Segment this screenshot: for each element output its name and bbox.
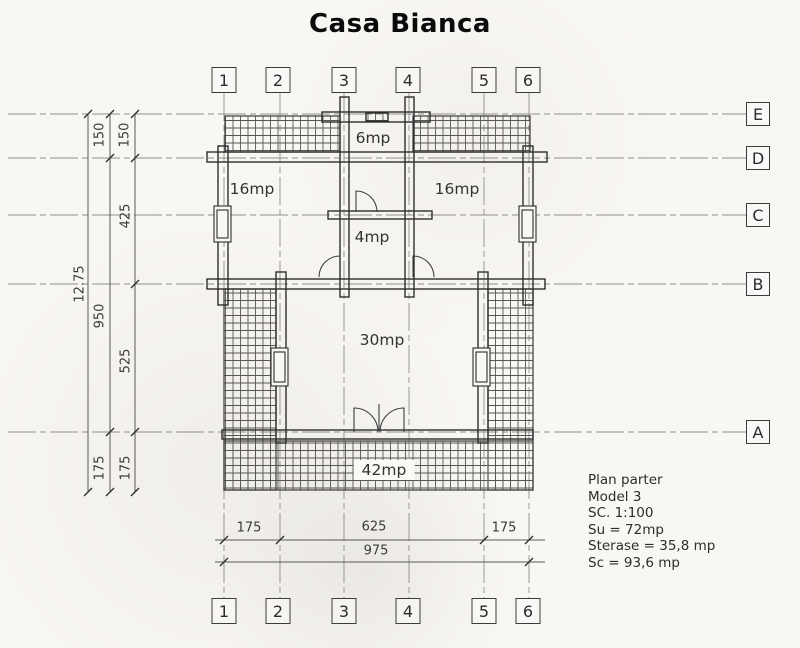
room-label-living-30mp: 30mp — [360, 331, 405, 349]
dim-label-950: 950 — [93, 304, 108, 329]
grid-col-marker-bottom-3: 3 — [332, 598, 357, 624]
floor-plan-page: Casa Bianca — [0, 0, 800, 648]
grid-col-marker-top-1: 1 — [212, 67, 237, 93]
grid-col-marker-bottom-1: 1 — [212, 598, 237, 624]
grid-row-marker-D: D — [746, 146, 770, 170]
grid-col-marker-bottom-2: 2 — [266, 598, 291, 624]
grid-row-marker-B: B — [746, 272, 770, 296]
dim-label-525: 525 — [119, 349, 134, 374]
dim-label-175-mid: 175 — [93, 456, 108, 481]
room-label-porch-6mp: 6mp — [356, 129, 391, 147]
grid-col-marker-bottom-4: 4 — [396, 598, 421, 624]
info-line-su: Su = 72mp — [588, 522, 715, 539]
terrace-hatch — [224, 116, 533, 490]
dim-label-975-total: 975 — [364, 544, 389, 559]
info-line-sterase: Sterase = 35,8 mp — [588, 538, 715, 555]
grid-col-marker-top-5: 5 — [472, 67, 497, 93]
grid-col-marker-bottom-5: 5 — [472, 598, 497, 624]
dim-label-175-right: 175 — [492, 521, 517, 536]
grid-col-marker-top-4: 4 — [396, 67, 421, 93]
info-line-sc: Sc = 93,6 mp — [588, 555, 715, 572]
room-label-left-16mp: 16mp — [230, 180, 275, 198]
info-line-plan: Plan parter — [588, 472, 715, 489]
grid-row-marker-A: A — [746, 420, 770, 444]
grid-col-marker-top-6: 6 — [516, 67, 541, 93]
dim-label-175-inner: 175 — [119, 456, 134, 481]
dim-label-150-mid: 150 — [93, 123, 108, 148]
plan-info-block: Plan parter Model 3 SC. 1:100 Su = 72mp … — [588, 472, 715, 572]
info-line-scale: SC. 1:100 — [588, 505, 715, 522]
dim-label-150-inner: 150 — [118, 123, 133, 148]
dim-label-175-left: 175 — [237, 521, 262, 536]
dim-label-425: 425 — [119, 204, 134, 229]
room-label-terrace-42mp: 42mp — [354, 460, 415, 480]
room-label-right-16mp: 16mp — [435, 180, 480, 198]
grid-col-marker-bottom-6: 6 — [516, 598, 541, 624]
room-label-hall-4mp: 4mp — [355, 228, 390, 246]
dim-label-625: 625 — [362, 520, 387, 535]
grid-row-marker-C: C — [746, 203, 770, 227]
dimension-ticks — [84, 110, 533, 566]
grid-col-marker-top-3: 3 — [332, 67, 357, 93]
grid-col-marker-top-2: 2 — [266, 67, 291, 93]
info-line-model: Model 3 — [588, 489, 715, 506]
grid-row-marker-E: E — [746, 102, 770, 126]
dim-label-total-height: 12.75 — [73, 265, 88, 302]
